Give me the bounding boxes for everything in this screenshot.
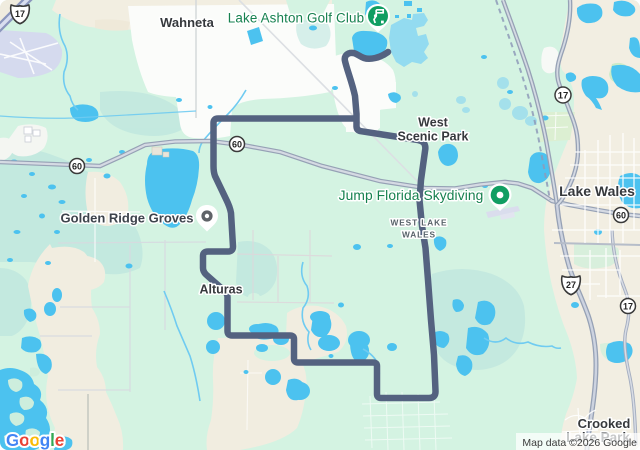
svg-text:Golden Ridge Groves: Golden Ridge Groves [61, 211, 194, 226]
svg-text:Jump Florida Skydiving: Jump Florida Skydiving [339, 188, 484, 203]
svg-text:WEST LAKE: WEST LAKE [391, 218, 448, 228]
svg-text:17: 17 [558, 91, 569, 102]
svg-text:West: West [418, 116, 448, 130]
svg-text:WALES: WALES [402, 230, 436, 240]
svg-text:Lake Wales: Lake Wales [559, 183, 635, 199]
svg-text:17: 17 [15, 9, 25, 19]
svg-text:Wahneta: Wahneta [160, 15, 214, 30]
svg-text:60: 60 [232, 140, 242, 150]
svg-text:Map data ©2026 Google: Map data ©2026 Google [522, 437, 637, 449]
svg-text:Scenic Park: Scenic Park [398, 130, 469, 144]
svg-text:Alturas: Alturas [199, 283, 242, 297]
svg-text:27: 27 [566, 280, 576, 290]
svg-text:Lake Ashton Golf Club: Lake Ashton Golf Club [228, 11, 364, 26]
svg-text:17: 17 [623, 302, 633, 312]
svg-text:Crooked: Crooked [578, 416, 631, 431]
svg-text:60: 60 [616, 211, 626, 221]
svg-text:60: 60 [72, 162, 82, 172]
svg-text:Google: Google [6, 430, 64, 450]
